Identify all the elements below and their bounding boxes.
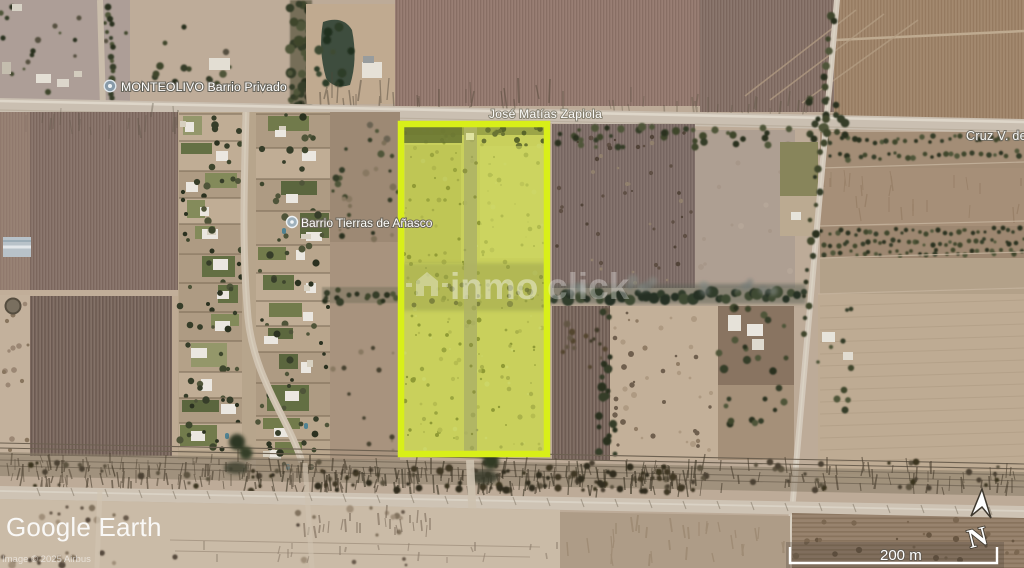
svg-text:inmo: inmo xyxy=(450,266,538,307)
svg-text:Barrio Tierras de Añasco: Barrio Tierras de Añasco xyxy=(301,216,433,230)
svg-text:200 m: 200 m xyxy=(880,547,922,564)
svg-text:Cruz V. de: Cruz V. de xyxy=(966,129,1024,143)
svg-text:José Matías Zapiola: José Matías Zapiola xyxy=(489,107,602,121)
svg-text:Google Earth: Google Earth xyxy=(6,512,162,542)
svg-text:MONTEOLIVO Barrio Privado: MONTEOLIVO Barrio Privado xyxy=(121,80,287,94)
svg-text:click: click xyxy=(547,266,630,307)
svg-text:Image © 2025 Airbus: Image © 2025 Airbus xyxy=(2,554,91,565)
